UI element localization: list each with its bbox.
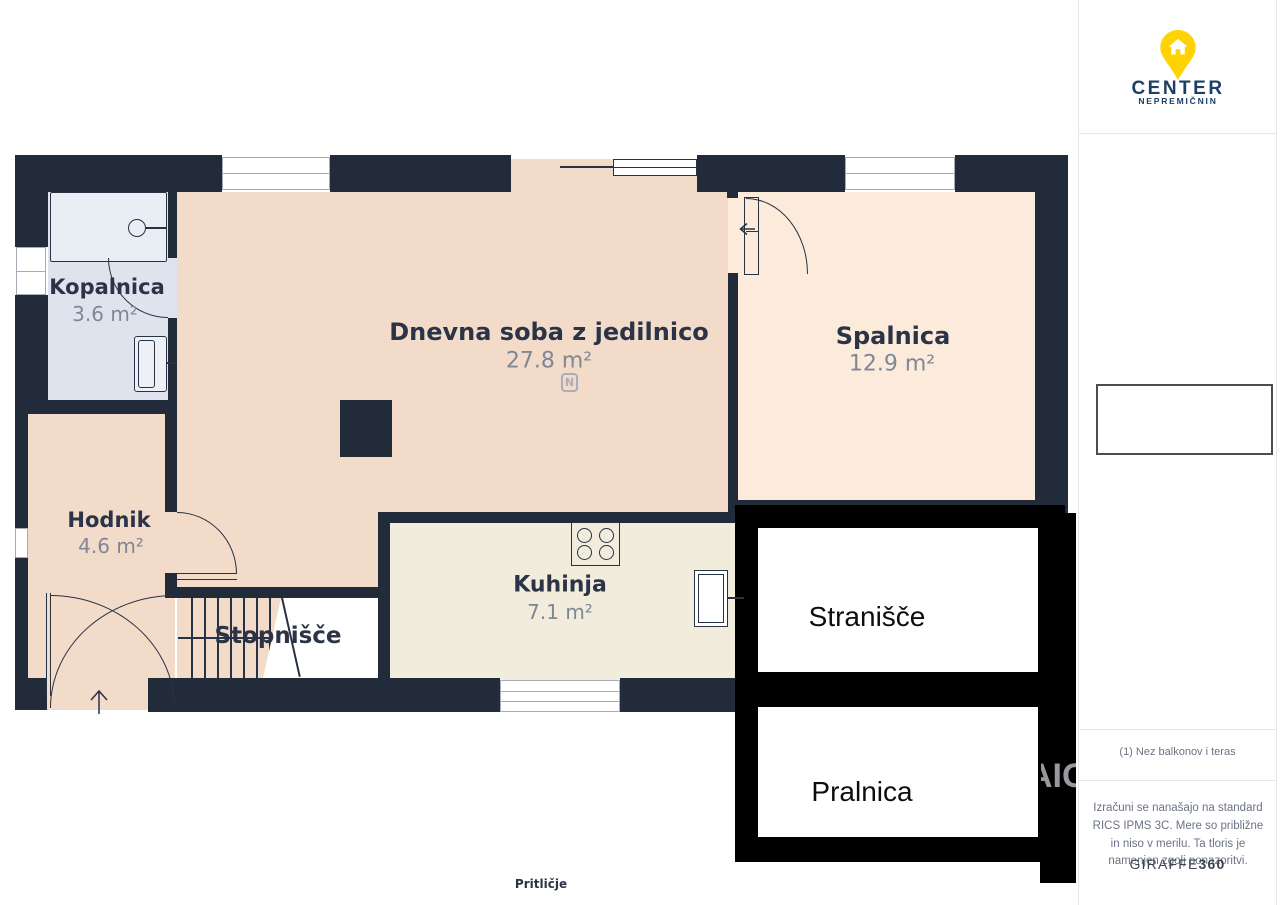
- box-pralnica: [758, 707, 1038, 837]
- note-divider-top: [1079, 729, 1276, 730]
- brand-pin-icon: [1160, 30, 1196, 80]
- wall-segment: [15, 295, 48, 408]
- empty-info-box: [1096, 384, 1273, 455]
- wall-segment: [165, 414, 177, 512]
- disclaimer-divider-top: [1079, 780, 1276, 781]
- toilet: [134, 336, 167, 392]
- sidebar-divider-right: [1276, 0, 1277, 905]
- wall-segment: [15, 155, 48, 247]
- wall-segment: [697, 155, 845, 192]
- door-opening-kopalnica: [168, 258, 177, 318]
- window-left-hodnik: [15, 528, 28, 558]
- area-kopalnica: 3.6 m²: [72, 302, 138, 326]
- window-kitchen-right: [694, 570, 728, 627]
- wall-segment: [15, 558, 28, 710]
- brand-subtitle: NEPREMIČNIN: [1079, 96, 1277, 106]
- faucet-line: [146, 227, 167, 229]
- stove: [571, 522, 620, 566]
- window-mullion: [223, 173, 329, 174]
- wall-segment: [1035, 192, 1068, 520]
- label-dnevna-soba: Dnevna soba z jedilnico: [389, 318, 709, 346]
- window-sill-line: [560, 166, 613, 168]
- wall-segment: [148, 678, 500, 712]
- label-stranisce: Stranišče: [809, 601, 926, 633]
- label-stopnisce: Stopnišče: [214, 623, 341, 649]
- floor-label: Pritličje: [515, 877, 567, 891]
- giraffe360-bold: 360: [1199, 856, 1226, 872]
- window-balcony-door: [613, 159, 697, 176]
- window-mullion: [614, 167, 696, 168]
- area-hodnik: 4.6 m²: [78, 534, 144, 558]
- window-bottom: [500, 680, 620, 712]
- area-spalnica: 12.9 m²: [849, 352, 935, 377]
- burner: [577, 545, 592, 560]
- window-tick: [728, 597, 744, 599]
- window-inner-frame: [698, 574, 724, 623]
- area-kuhinja: 7.1 m²: [527, 600, 593, 624]
- wall-segment: [173, 587, 390, 598]
- burner: [599, 528, 614, 543]
- giraffe360-logo: GIRAFFE360: [1079, 856, 1276, 872]
- door-frame-entry: [46, 593, 51, 696]
- wall-segment: [620, 678, 740, 712]
- toilet-tick: [167, 362, 177, 364]
- bathtub-faucet: [128, 219, 146, 237]
- wall-segment: [728, 273, 738, 500]
- wall-segment: [15, 408, 28, 528]
- window-top-left: [222, 157, 330, 190]
- wall-segment: [28, 400, 177, 414]
- window-top-right: [845, 157, 955, 190]
- wall-segment: [390, 512, 735, 523]
- entry-arrow-up-icon: [88, 688, 110, 715]
- door-sill-line: [177, 573, 237, 574]
- window-left-bath: [16, 247, 46, 295]
- label-pralnica: Pralnica: [811, 776, 912, 808]
- wall-segment: [168, 318, 177, 400]
- door-leaf-spalnica: [744, 197, 759, 275]
- giraffe360-text: GIRAFFE: [1129, 856, 1198, 872]
- toilet-bowl: [138, 340, 155, 388]
- window-mullion: [501, 701, 619, 702]
- wall-chimney-notch: [340, 400, 392, 457]
- sidebar-divider-vertical: [1078, 0, 1079, 905]
- logo-card-divider: [1079, 133, 1276, 134]
- wall-segment: [28, 678, 47, 710]
- label-hodnik: Hodnik: [67, 508, 150, 532]
- sidebar-note: (1) Nez balkonov i teras: [1079, 746, 1276, 758]
- window-mullion: [501, 691, 619, 692]
- label-kopalnica: Kopalnica: [49, 275, 165, 299]
- wall-segment: [727, 190, 738, 198]
- arrow-left-icon: [737, 222, 757, 236]
- window-mullion: [846, 173, 954, 174]
- burner: [599, 545, 614, 560]
- box-stranisce: [758, 528, 1038, 672]
- wall-segment: [330, 155, 511, 192]
- burner: [577, 528, 592, 543]
- label-spalnica: Spalnica: [836, 322, 951, 350]
- compass-letter: N: [565, 376, 574, 389]
- black-overlay-strip: [1040, 513, 1076, 883]
- watermark-text: AIG: [1041, 758, 1076, 794]
- watermark-fragment: AIG: [1041, 758, 1076, 794]
- wall-segment: [168, 192, 177, 258]
- window-mullion: [17, 271, 45, 272]
- floor-plan-page: AIG: [0, 0, 1280, 905]
- wall-segment: [955, 155, 1068, 192]
- door-opening-hodnik: [165, 512, 177, 573]
- area-dnevna-soba: 27.8 m²: [506, 349, 592, 374]
- compass-north-icon: N: [561, 373, 578, 392]
- label-kuhinja: Kuhinja: [513, 573, 607, 598]
- door-sill-line: [177, 579, 237, 580]
